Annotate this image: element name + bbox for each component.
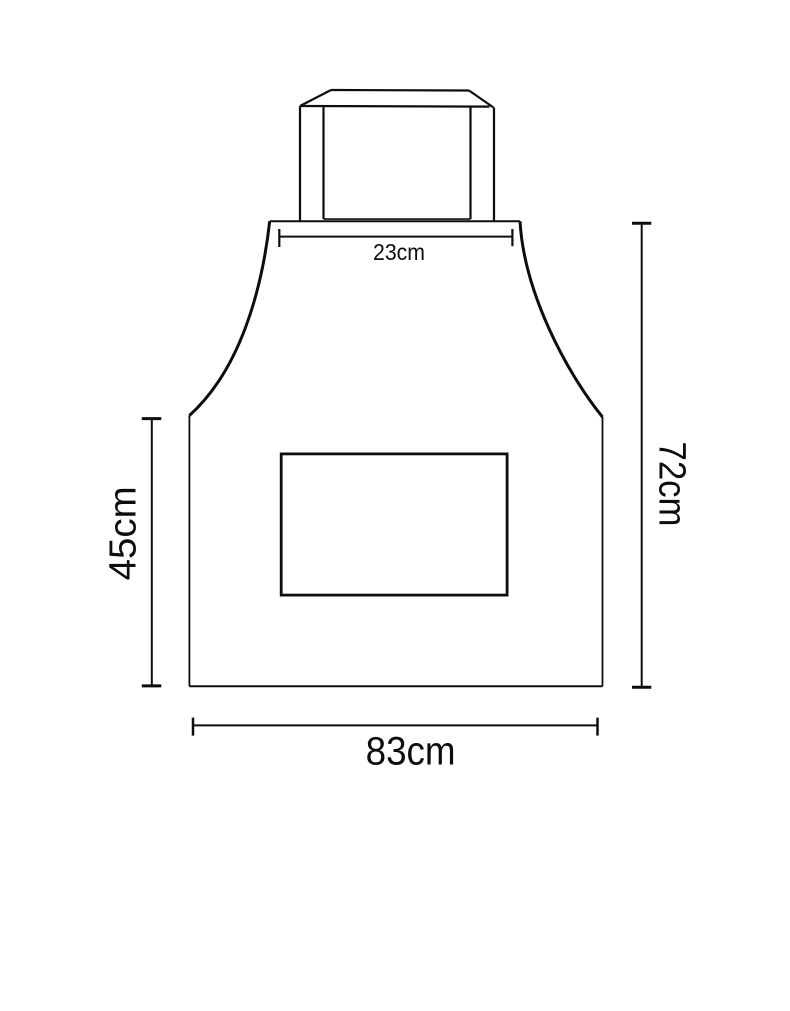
svg-text:83cm: 83cm xyxy=(366,730,456,774)
svg-text:45cm: 45cm xyxy=(103,486,145,580)
svg-text:72cm: 72cm xyxy=(650,442,692,527)
svg-text:23cm: 23cm xyxy=(373,239,425,265)
